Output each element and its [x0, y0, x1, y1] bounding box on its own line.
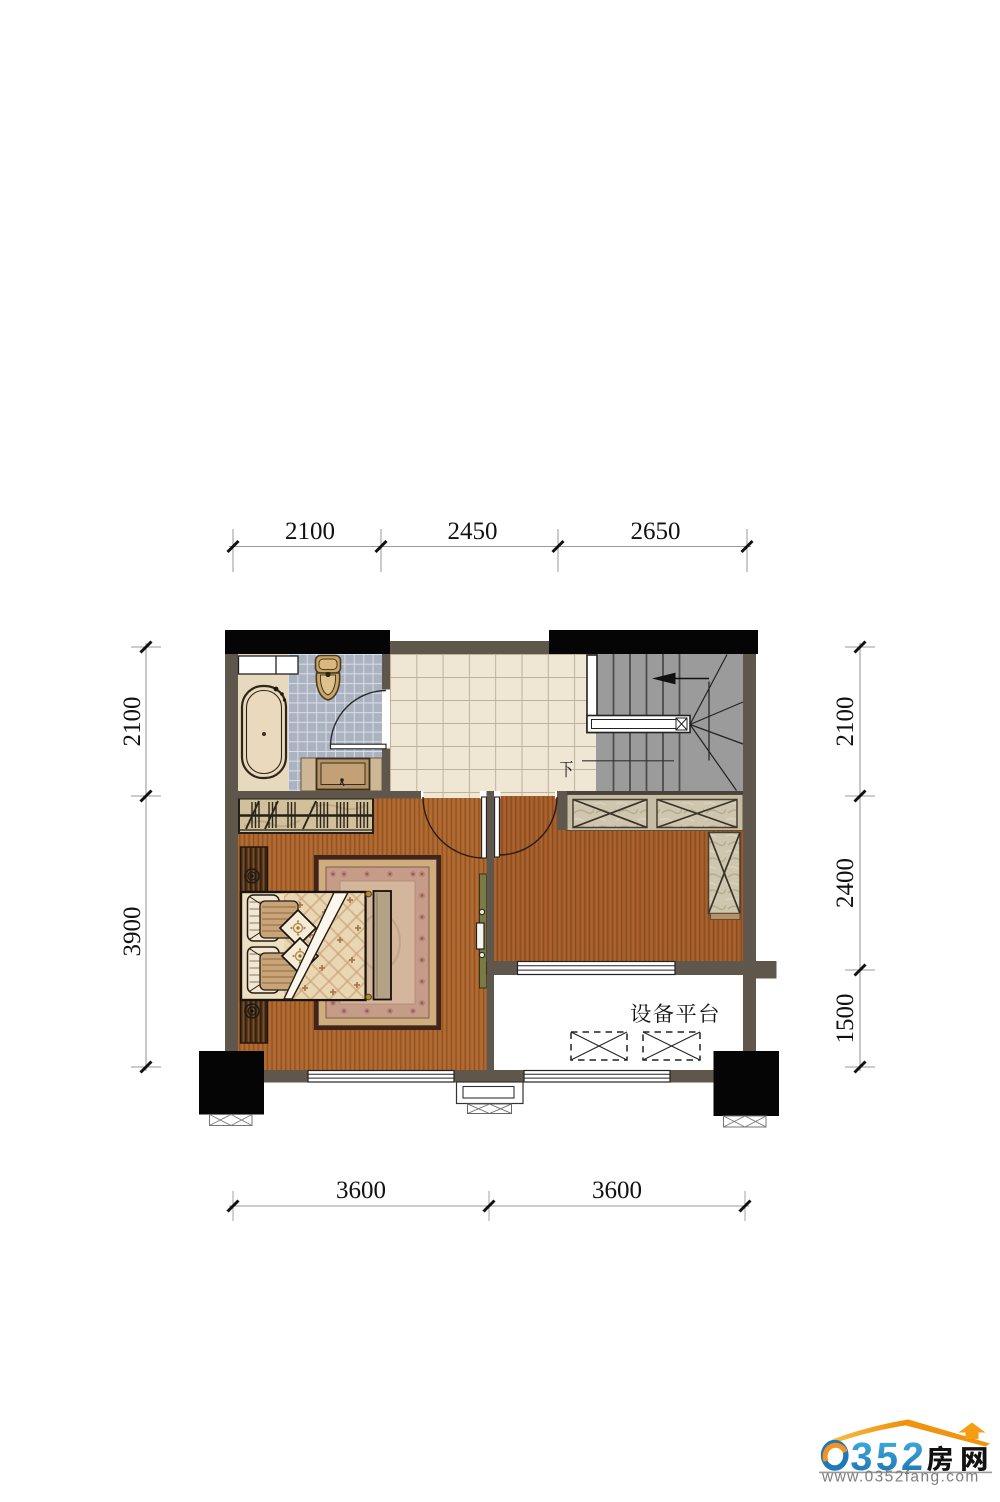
svg-text:2100: 2100	[119, 697, 146, 747]
svg-text:3900: 3900	[119, 907, 146, 957]
svg-text:2100: 2100	[285, 518, 335, 545]
svg-text:3600: 3600	[336, 1177, 386, 1204]
svg-text:2100: 2100	[832, 697, 859, 747]
svg-text:1500: 1500	[832, 994, 859, 1044]
svg-text:2400: 2400	[832, 858, 859, 908]
svg-text:2650: 2650	[631, 518, 681, 545]
svg-text:3600: 3600	[592, 1177, 642, 1204]
svg-text:www.0352fang.com: www.0352fang.com	[821, 1469, 980, 1486]
svg-text:2450: 2450	[448, 518, 498, 545]
